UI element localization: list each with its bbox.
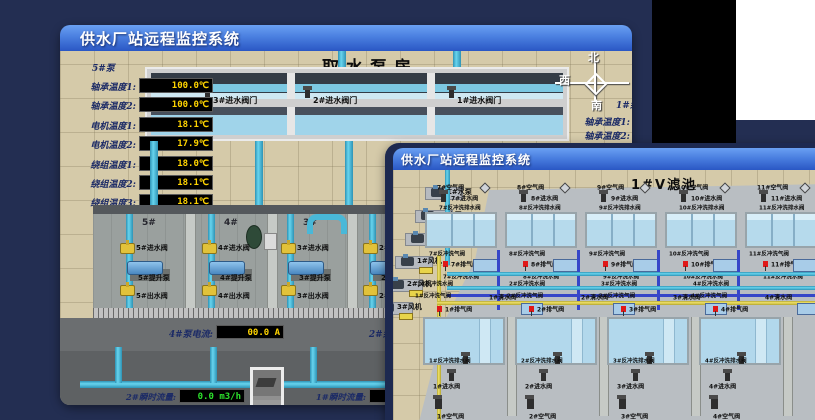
inlet-valve-label: 7#进水阀 <box>451 196 478 202</box>
equipment-label: 3#风机 <box>397 304 422 311</box>
front-window-title: 供水厂站远程监控系统 <box>393 151 531 168</box>
 <box>126 240 129 245</box>
inlet-valve-icon[interactable] <box>281 243 296 254</box>
temp-row-label: 绕组温度1: <box>60 158 136 171</box>
drain-valve-label: 7#反冲洗排水阀 <box>439 206 481 212</box>
pump-current-label: 4#泵电流: <box>155 327 213 340</box>
exhaust-valve-icon[interactable] <box>523 261 528 267</box>
 <box>447 369 456 373</box>
pool-lane-divider <box>713 214 715 246</box>
flow-meter-label: 1#瞬时流量: <box>296 391 366 403</box>
temp-row-label: 电机温度2: <box>60 138 136 151</box>
 <box>605 266 606 271</box>
air-valve-label: 3#空气阀 <box>621 414 648 420</box>
intake-valve-label: 1#进水阀门 <box>457 97 501 105</box>
equipment-photo <box>250 367 284 405</box>
 <box>737 352 746 356</box>
pool-lane-divider <box>479 319 491 363</box>
 <box>631 369 640 373</box>
exhaust-valve-icon[interactable] <box>603 261 608 267</box>
 <box>645 352 654 356</box>
exhaust-valve-icon[interactable] <box>763 261 768 267</box>
control-panel-icon[interactable] <box>264 233 277 250</box>
exhaust-valve-label: 3#排气阀 <box>629 307 656 313</box>
intake-valve-label: 3#进水阀门 <box>213 97 257 105</box>
outlet-valve-label: 5#出水阀 <box>136 293 168 300</box>
 <box>287 240 290 245</box>
 <box>531 311 532 316</box>
level-tank-icon <box>633 259 659 272</box>
inlet-valve-icon[interactable] <box>633 372 638 381</box>
filter-pool <box>745 212 815 248</box>
air-channel <box>415 391 815 413</box>
 <box>393 277 398 281</box>
backwash-water-valve-label: 4#反冲洗水阀 <box>693 282 729 288</box>
filter-pool-scene: 1#V滤池 1#水泵2#水泵3#水泵1#风机2#风机3#风机7#空气阀7#进水阀… <box>393 170 815 420</box>
inlet-valve-icon[interactable] <box>363 243 378 254</box>
intake-valve-label: 2#进水阀门 <box>313 97 357 105</box>
equipment-pump-icon[interactable] <box>393 280 404 289</box>
 <box>747 214 815 220</box>
pool-lane-divider <box>691 214 693 246</box>
pump1-header: 1#泵 <box>616 98 632 111</box>
pump-label: 5#提升泵 <box>138 275 170 282</box>
inlet-valve-icon[interactable] <box>725 372 730 381</box>
inlet-valve-icon[interactable] <box>601 193 606 202</box>
inlet-valve-icon[interactable] <box>541 372 546 381</box>
inlet-valve-label: 4#进水阀 <box>709 384 736 390</box>
 <box>433 395 442 399</box>
pool-lane-divider <box>571 319 583 363</box>
inlet-valve-label: 4#进水阀 <box>218 245 250 252</box>
temp-row-value: 100.0℃ <box>139 97 213 112</box>
inlet-valve-label: 3#进水阀 <box>617 384 644 390</box>
air-valve-label: 2#空气阀 <box>529 414 556 420</box>
 <box>765 266 766 271</box>
 <box>553 352 562 356</box>
filter-pool <box>585 212 657 248</box>
 <box>539 369 548 373</box>
outlet-valve-icon[interactable] <box>202 285 217 296</box>
backwash-water-valve-label: 3#反冲洗水阀 <box>601 282 637 288</box>
flow-meter-label: 2#瞬时流量: <box>106 391 176 403</box>
outlet-branch-pipe <box>210 347 217 383</box>
bay-divider-wall <box>267 214 278 308</box>
intake-divider <box>287 73 295 99</box>
inlet-valve-label: 3#进水阀 <box>297 245 329 252</box>
exhaust-valve-icon[interactable] <box>437 306 442 312</box>
backwash-air-valve-label: 10#反冲洗气阀 <box>669 252 709 258</box>
backwash-air-valve-label: 4#反冲洗气阀 <box>691 294 727 300</box>
 <box>587 214 655 220</box>
pump-icon[interactable] <box>288 261 324 275</box>
pool-lane-divider <box>663 319 675 363</box>
 <box>723 369 732 373</box>
exhaust-valve-icon[interactable] <box>683 261 688 267</box>
drain-valve-label: 9#反冲洗排水阀 <box>599 206 641 212</box>
drain-valve-label: 11#反冲洗排水阀 <box>759 206 804 212</box>
level-tank-icon <box>553 259 579 272</box>
 <box>525 395 534 399</box>
 <box>525 266 526 271</box>
 <box>369 282 372 287</box>
inlet-valve-label: 11#进水阀 <box>771 196 802 202</box>
 <box>679 190 688 194</box>
air-valve-label: 1#空气阀 <box>437 414 464 420</box>
level-tank-icon <box>713 259 739 272</box>
front-window-titlebar[interactable]: 供水厂站远程监控系统 <box>393 148 815 170</box>
air-channel-band <box>415 411 815 420</box>
inlet-valve-label: 5#进水阀 <box>136 245 168 252</box>
inlet-valve-icon[interactable] <box>681 193 686 202</box>
compass-south-label: 南 <box>591 97 602 113</box>
 <box>461 352 470 356</box>
filter-pool-window: 供水厂站远程监控系统 1#V滤池 1#水泵2#水泵3#水泵1#风机2#风机3#风… <box>385 143 815 420</box>
inlet-valve-icon[interactable] <box>120 243 135 254</box>
 <box>445 266 446 271</box>
outlet-valve-icon[interactable] <box>120 285 135 296</box>
 <box>369 240 372 245</box>
level-tank-icon <box>793 259 815 272</box>
pump-current-value: 00.0 A <box>216 325 284 339</box>
temp-row-label: 电机温度1: <box>60 119 136 132</box>
inlet-valve-label: 1#进水阀 <box>433 384 460 390</box>
inlet-valve-icon[interactable] <box>521 193 526 202</box>
filter-pool <box>425 212 497 248</box>
air-valve-icon[interactable] <box>711 398 718 409</box>
 <box>623 311 624 316</box>
drain-valve-label: 1#反冲洗排水阀 <box>429 359 471 365</box>
flow-meter-value: 0.0 m3/h <box>179 389 245 403</box>
air-valve-label: 4#空气阀 <box>713 414 740 420</box>
inlet-valve-icon[interactable] <box>761 193 766 202</box>
drain-valve-label: 8#反冲洗排水阀 <box>519 206 561 212</box>
intake-valve-icon[interactable] <box>305 89 310 98</box>
intake-divider <box>427 107 435 135</box>
pump-icon[interactable] <box>127 261 163 275</box>
 <box>519 190 528 194</box>
filter-pool <box>665 212 737 248</box>
backwash-air-valve-label: 11#反冲洗气阀 <box>749 252 789 258</box>
 <box>685 266 686 271</box>
air-valve-icon[interactable] <box>619 398 626 409</box>
inlet-channel <box>419 367 815 383</box>
exhaust-valve-label: 4#排气阀 <box>721 307 748 313</box>
 <box>439 190 448 194</box>
air-valve-icon[interactable] <box>527 398 534 409</box>
inlet-valve-label: 8#进水阀 <box>531 196 558 202</box>
 <box>617 395 626 399</box>
backwash-air-valve-label: 7#反冲洗气阀 <box>429 252 465 258</box>
background-black-panel <box>652 0 736 148</box>
backwash-air-valve-label: 9#反冲洗气阀 <box>589 252 625 258</box>
equipment-pump-icon[interactable] <box>411 234 424 243</box>
 <box>126 282 129 287</box>
equipment-pump-icon[interactable] <box>401 257 414 266</box>
 <box>403 254 408 258</box>
pool-side-wall <box>783 317 793 416</box>
desktop: 供水厂站远程监控系统 取水泵房 3#进水阀门2#进水阀门1#进水阀门5#泵轴承温… <box>0 0 815 420</box>
backwash-water-valve-label: 1#反冲洗水阀 <box>417 282 453 288</box>
pool-lane-divider <box>451 214 453 246</box>
clean-water-valve-label: 4#清水阀 <box>765 295 792 301</box>
bay-header: 5# <box>142 219 156 228</box>
backwash-air-valve-label: 2#反冲洗气阀 <box>507 294 543 300</box>
 <box>715 311 716 316</box>
intake-divider <box>427 73 435 99</box>
temp-row-label: 轴承温度2: <box>574 129 630 142</box>
pool-lane-divider <box>553 214 555 246</box>
drain-valve-label: 10#反冲洗排水阀 <box>679 206 724 212</box>
pool-lane-divider <box>793 214 795 246</box>
pump5-header: 5#泵 <box>92 61 115 74</box>
intake-valve-icon[interactable] <box>449 89 454 98</box>
inlet-valve-icon[interactable] <box>449 372 454 381</box>
pump-icon[interactable] <box>209 261 245 275</box>
inlet-valve-label: 9#进水阀 <box>611 196 638 202</box>
back-window-title: 供水厂站远程监控系统 <box>60 28 240 49</box>
 <box>427 214 495 220</box>
exhaust-valve-icon[interactable] <box>529 306 534 312</box>
temp-row-label: 轴承温度2: <box>60 99 136 112</box>
outlet-valve-label: 4#出水阀 <box>218 293 250 300</box>
inlet-valve-icon[interactable] <box>441 193 446 202</box>
equipment-pump-icon[interactable] <box>393 303 394 312</box>
backwash-air-valve-label: 3#反冲洗气阀 <box>599 294 635 300</box>
inlet-valve-icon[interactable] <box>202 243 217 254</box>
 <box>759 190 768 194</box>
temp-row-label: 绕组温度2: <box>60 177 136 190</box>
temp-row-label: 轴承温度1: <box>574 115 630 128</box>
pool-lane-divider <box>633 214 635 246</box>
pool-lane-divider <box>755 319 767 363</box>
pool-lane-divider <box>611 214 613 246</box>
exhaust-valve-icon[interactable] <box>443 261 448 267</box>
connector-pipe <box>255 141 263 205</box>
 <box>287 282 290 287</box>
connector-pipe <box>150 141 158 205</box>
filter-pool <box>505 212 577 248</box>
 <box>208 240 211 245</box>
pump-label: 4#提升泵 <box>220 275 252 282</box>
outlet-valve-icon[interactable] <box>281 285 296 296</box>
backwash-water-main <box>447 272 815 276</box>
 <box>447 86 456 90</box>
outlet-branch-pipe <box>310 347 317 383</box>
back-window-titlebar[interactable]: 供水厂站远程监控系统 <box>60 25 632 51</box>
outlet-branch-pipe <box>115 347 122 383</box>
compass-north-label: 北 <box>588 51 599 65</box>
air-valve-icon[interactable] <box>435 398 442 409</box>
outlet-valve-icon[interactable] <box>363 285 378 296</box>
blower-current-tag <box>419 267 433 274</box>
drain-valve-label: 3#反冲洗排水阀 <box>613 359 655 365</box>
pool-lane-divider <box>473 214 475 246</box>
 <box>208 282 211 287</box>
pool-lane-divider <box>771 214 773 246</box>
pump-label: 3#提升泵 <box>299 275 331 282</box>
exhaust-valve-label: 1#排气阀 <box>445 307 472 313</box>
bay-header: 4# <box>224 219 238 228</box>
compass-west-label: 西 <box>559 72 570 88</box>
exhaust-valve-icon[interactable] <box>621 306 626 312</box>
 <box>667 214 735 220</box>
 <box>439 311 440 316</box>
exhaust-valve-icon[interactable] <box>713 306 718 312</box>
equipment-photo-shape <box>256 378 277 387</box>
backwash-water-valve-label: 2#反冲洗水阀 <box>509 282 545 288</box>
connector-pipe <box>345 141 353 205</box>
 <box>709 395 718 399</box>
pool-lane-divider <box>531 214 533 246</box>
exhaust-valve-label: 2#排气阀 <box>537 307 564 313</box>
clean-water-valve-icon[interactable] <box>797 303 815 315</box>
backwash-air-valve-label: 8#反冲洗气阀 <box>509 252 545 258</box>
bay-divider-wall <box>347 214 358 308</box>
temp-row-label: 轴承温度1: <box>60 80 136 93</box>
blower-current-tag <box>399 313 413 320</box>
temp-row-value: 18.1℃ <box>139 117 213 132</box>
 <box>507 214 575 220</box>
 <box>303 86 312 90</box>
drain-valve-label: 2#反冲洗排水阀 <box>521 359 563 365</box>
backwash-air-valve-label: 1#反冲洗气阀 <box>415 294 451 300</box>
level-tank-icon <box>473 259 499 272</box>
bay-divider-wall <box>185 214 196 308</box>
compass-star-icon <box>585 73 608 96</box>
u-pipe <box>307 214 347 234</box>
inlet-valve-label: 10#进水阀 <box>691 196 722 202</box>
 <box>599 190 608 194</box>
equipment-photo-tab <box>253 400 281 405</box>
drain-valve-label: 4#反冲洗排水阀 <box>705 359 747 365</box>
outlet-valve-label: 3#出水阀 <box>297 293 329 300</box>
temp-row-value: 100.0℃ <box>139 78 213 93</box>
inlet-valve-label: 2#进水阀 <box>525 384 552 390</box>
intake-divider <box>287 107 295 135</box>
 <box>413 231 418 235</box>
